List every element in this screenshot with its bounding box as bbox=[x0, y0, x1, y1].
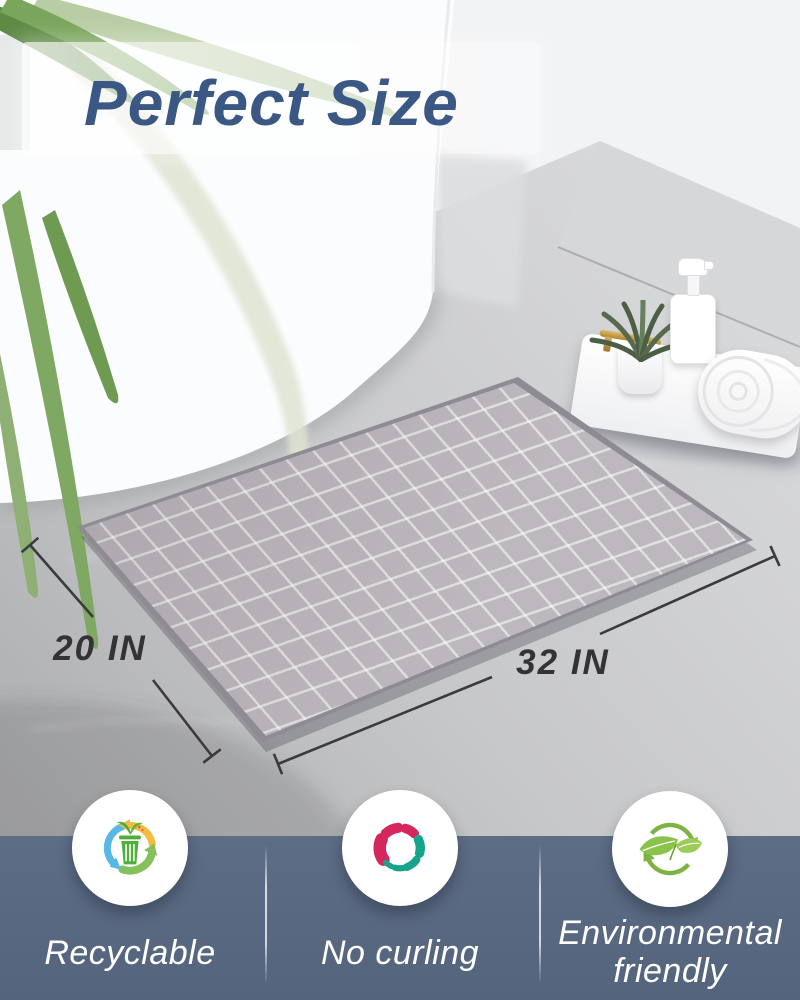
divider bbox=[539, 844, 541, 984]
page-title: Perfect Size bbox=[84, 66, 459, 140]
feature-label-environmental: Environmental friendly bbox=[550, 914, 790, 990]
length-dimension-label: 32 IN bbox=[493, 643, 633, 683]
soap-dispenser-spout bbox=[704, 261, 714, 270]
soap-dispenser-body bbox=[670, 294, 716, 364]
feature-label-no-curling: No curling bbox=[280, 934, 520, 972]
product-infographic: Perfect Size bbox=[0, 0, 800, 1000]
feature-circle-no-curling bbox=[342, 790, 458, 906]
feature-circle-recyclable bbox=[72, 790, 188, 906]
bath-tray-group bbox=[570, 248, 800, 468]
feature-circle-environmental bbox=[612, 791, 728, 907]
divider bbox=[265, 844, 267, 984]
width-dimension-label: 20 IN bbox=[30, 629, 170, 669]
soap-dispenser-stem bbox=[687, 274, 700, 296]
eco-leaves-icon bbox=[630, 809, 710, 889]
recycle-trash-icon bbox=[91, 809, 169, 887]
feature-label-recyclable: Recyclable bbox=[10, 934, 250, 972]
no-curling-ring-icon bbox=[361, 809, 439, 887]
